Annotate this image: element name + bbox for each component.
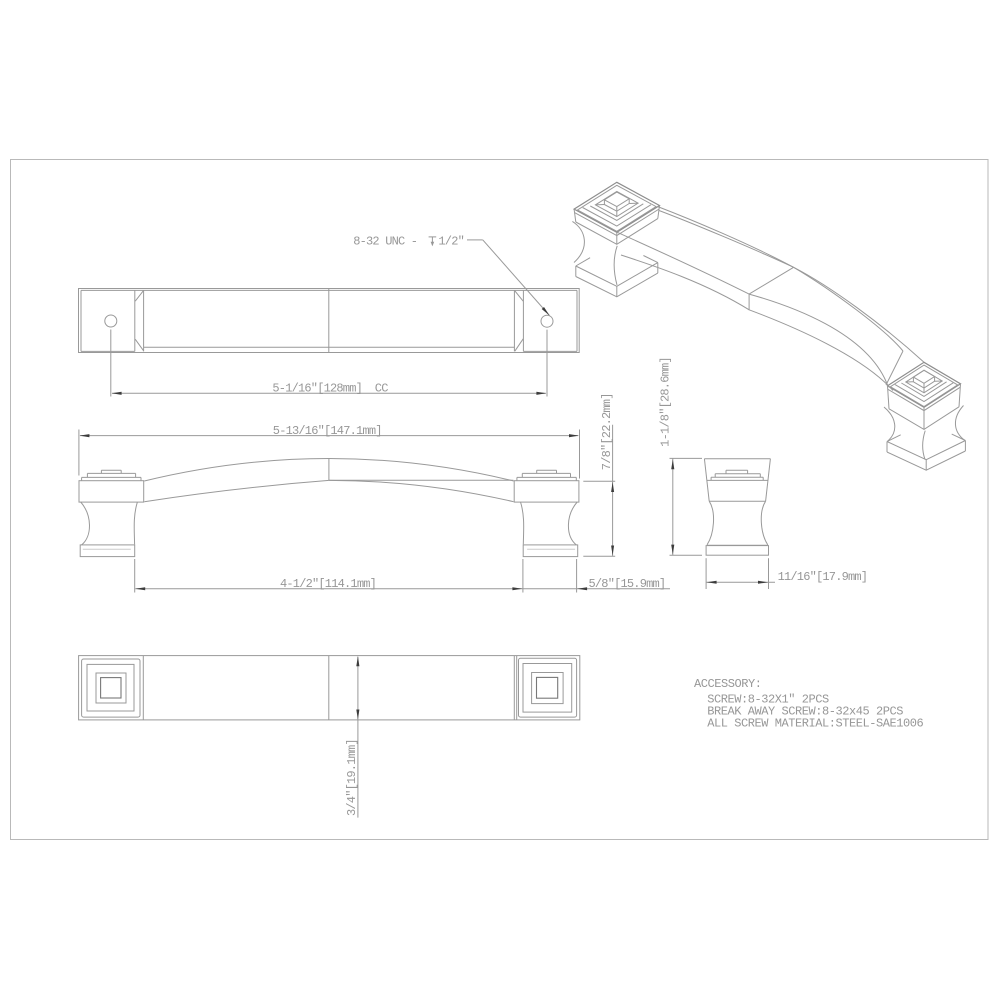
- svg-text:5-13/16"[147.1mm]: 5-13/16"[147.1mm]: [273, 424, 382, 438]
- svg-text:8-32 UNC -: 8-32 UNC -: [353, 234, 423, 248]
- svg-text:7/8"[22.2mm]: 7/8"[22.2mm]: [600, 393, 614, 470]
- svg-text:3/4"[19.1mm]: 3/4"[19.1mm]: [345, 739, 359, 816]
- svg-text:ACCESSORY:: ACCESSORY:: [694, 677, 762, 691]
- svg-text:1/2": 1/2": [438, 234, 464, 248]
- svg-text:1-1/8"[28.6mm]: 1-1/8"[28.6mm]: [659, 357, 673, 447]
- svg-text:11/16"[17.9mm]: 11/16"[17.9mm]: [778, 570, 868, 584]
- svg-text:5-1/16"[128mm] CC: 5-1/16"[128mm] CC: [272, 382, 388, 396]
- svg-text:5/8"[15.9mm]: 5/8"[15.9mm]: [589, 577, 666, 591]
- svg-text:ALL SCREW MATERIAL:STEEL-SAE10: ALL SCREW MATERIAL:STEEL-SAE1006: [707, 717, 923, 731]
- svg-text:4-1/2"[114.1mm]: 4-1/2"[114.1mm]: [280, 577, 376, 591]
